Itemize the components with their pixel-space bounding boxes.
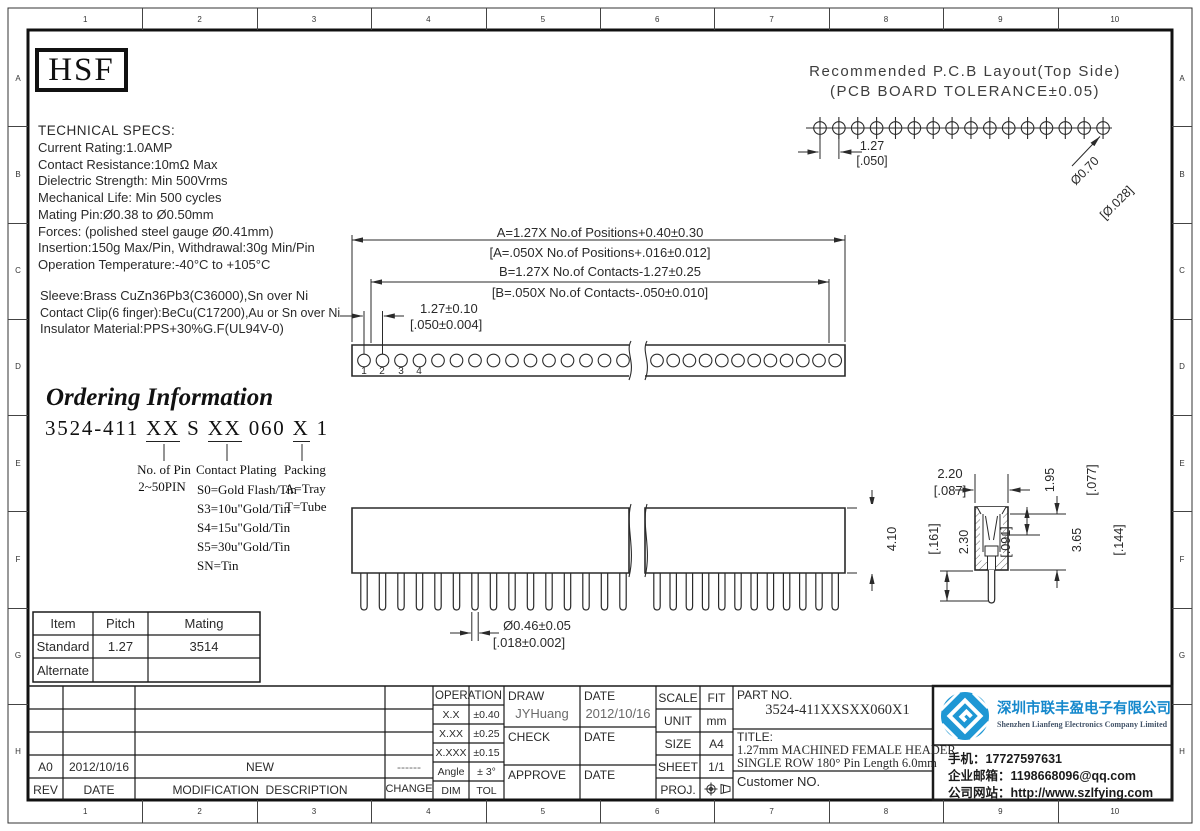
rev-header: REV [28, 783, 63, 797]
draw-date-label: DATE [584, 689, 615, 703]
rev-change-value: ------ [385, 760, 433, 774]
pcb-pitch-dim-mm: 1.27 [850, 139, 894, 153]
drawing-sheet: HSF Recommended P.C.B Layout(Top Side) (… [0, 0, 1200, 831]
ordering-packing-options: A=Tray T=Tube [285, 480, 327, 516]
tol-dim-5: DIM [433, 785, 469, 797]
pin-number-4: 4 [411, 366, 427, 377]
check-date-label: DATE [584, 730, 615, 744]
ruler-number-bottom: 7 [714, 802, 828, 821]
ruler-tick [8, 319, 28, 320]
approve-date-label: DATE [584, 768, 615, 782]
mating-row-alternate: Alternate [33, 663, 93, 678]
dim-b-metric: B=1.27X No.of Contacts-1.27±0.25 [430, 264, 770, 279]
ruler-number-bottom: 6 [600, 802, 714, 821]
spec-line: Sleeve:Brass CuZn36Pb3(C36000),Sn over N… [40, 288, 340, 305]
pin-number-2: 2 [374, 366, 390, 377]
mating-row-standard-pitch: 1.27 [93, 639, 148, 654]
ruler-tick [371, 8, 372, 30]
rev-date-value: 2012/10/16 [63, 760, 135, 774]
company-logo-icon [938, 689, 992, 743]
ordering-leader-lines [164, 444, 302, 461]
scale-label: SCALE [656, 691, 700, 705]
ruler-tick [486, 8, 487, 30]
ruler-number-top: 8 [829, 9, 943, 29]
ruler-tick [1172, 608, 1192, 609]
ruler-tick [8, 608, 28, 609]
check-label: CHECK [508, 730, 550, 744]
tol-dim-2: X.XX [433, 728, 469, 740]
ruler-number-top: 7 [714, 9, 828, 29]
ordering-plating-label: Contact Plating [196, 462, 277, 478]
ruler-letter-left: A [9, 30, 27, 126]
scale-value: FIT [700, 691, 733, 705]
ruler-letter-right: A [1173, 30, 1191, 126]
ordering-plating-options: S0=Gold Flash/Tin S3=10u"Gold/Tin S4=15u… [197, 480, 297, 575]
tolerance-title: OPERATION [433, 690, 504, 702]
proj-label: PROJ. [656, 783, 700, 797]
ruler-number-top: 10 [1058, 9, 1172, 29]
rev-desc-value: NEW [135, 760, 385, 774]
rev-value: A0 [28, 760, 63, 774]
ruler-tick [1172, 223, 1192, 224]
unit-label: UNIT [656, 714, 700, 728]
ruler-tick [829, 800, 830, 823]
spec-line: Mating Pin:Ø0.38 to Ø0.50mm [38, 207, 315, 224]
ruler-number-top: 2 [142, 9, 256, 29]
mating-header-pitch: Pitch [93, 616, 148, 631]
ordering-part-number: 3524-411 XX S XX 060 X 1 [45, 416, 329, 441]
ruler-letter-left: E [9, 415, 27, 511]
approve-label: APPROVE [508, 768, 566, 782]
tol-val-3: ±0.15 [469, 747, 504, 759]
spec-line: Operation Temperature:-40°C to +105°C [38, 257, 315, 274]
tol-val-2: ±0.25 [469, 728, 504, 740]
company-name-en: Shenzhen Lianfeng Electronics Company Li… [997, 720, 1167, 729]
pcb-pitch-dim-in: [.050] [845, 154, 899, 168]
ruler-letter-left: B [9, 126, 27, 222]
ordering-title: Ordering Information [46, 384, 273, 412]
ordering-packing-label: Packing [284, 462, 326, 478]
ruler-tick [8, 126, 28, 127]
ruler-tick [486, 800, 487, 823]
pcb-layout-title: Recommended P.C.B Layout(Top Side) [798, 63, 1132, 80]
pin-number-1: 1 [356, 366, 372, 377]
ruler-tick [1172, 319, 1192, 320]
rev-desc-header: MODIFICATION DESCRIPTION [135, 783, 385, 797]
ruler-number-top: 1 [28, 9, 142, 29]
hsf-logo: HSF [35, 48, 128, 92]
mating-header-item: Item [33, 616, 93, 631]
tol-dim-4: Angle [433, 766, 469, 778]
dim-width-metric: 2.20 [925, 466, 975, 481]
side-view-drawing [352, 490, 886, 641]
ruler-tick [142, 8, 143, 30]
spec-line: Insulator Material:PPS+30%G.F(UL94V-0) [40, 321, 340, 338]
ruler-tick [1172, 415, 1192, 416]
dim-pitch-inch: [.050±0.004] [410, 317, 482, 332]
size-label: SIZE [656, 737, 700, 751]
sheet-value: 1/1 [700, 760, 733, 774]
tol-dim-3: X.XXX [433, 747, 469, 759]
tol-val-1: ±0.40 [469, 709, 504, 721]
title-line2: SINGLE ROW 180° Pin Length 6.0mm [737, 756, 937, 771]
spec-line: Dielectric Strength: Min 500Vrms [38, 173, 315, 190]
dim-body-height: 4.10 [.161] [857, 504, 887, 574]
ruler-number-bottom: 10 [1058, 802, 1172, 821]
ruler-letter-right: C [1173, 223, 1191, 319]
ruler-number-bottom: 8 [829, 802, 943, 821]
ruler-tick [142, 800, 143, 823]
ruler-number-bottom: 2 [142, 802, 256, 821]
ruler-tick [829, 8, 830, 30]
pcb-layout-subtitle: (PCB BOARD TOLERANCE±0.05) [798, 83, 1132, 100]
ruler-number-top: 4 [371, 9, 485, 29]
ordering-pin-value: 2~50PIN [134, 479, 190, 495]
dim-pitch-metric: 1.27±0.10 [420, 301, 478, 316]
ruler-tick [8, 511, 28, 512]
dim-tail: 2.30 [.091] [929, 512, 959, 572]
ruler-tick [600, 800, 601, 823]
dim-a-inch: [A=.050X No.of Positions+.016±0.012] [430, 245, 770, 260]
dim-b-inch: [B=.050X No.of Contacts-.050±0.010] [430, 285, 770, 300]
tech-specs-list: Current Rating:1.0AMP Contact Resistance… [38, 140, 315, 274]
spec-line: Insertion:150g Max/Pin, Withdrawal:30g M… [38, 240, 315, 257]
size-value: A4 [700, 737, 733, 751]
ruler-letter-right: B [1173, 126, 1191, 222]
ruler-tick [1058, 800, 1059, 823]
ruler-tick [8, 415, 28, 416]
unit-value: mm [700, 714, 733, 728]
ruler-tick [1172, 704, 1192, 705]
rev-date-header: DATE [63, 783, 135, 797]
tol-val-5: TOL [469, 785, 504, 797]
title-label: TITLE: [737, 730, 773, 744]
dim-pin-dia-inch: [.018±0.002] [464, 635, 594, 650]
ruler-tick [257, 800, 258, 823]
ruler-letter-left: F [9, 511, 27, 607]
material-specs-list: Sleeve:Brass CuZn36Pb3(C36000),Sn over N… [40, 288, 340, 338]
company-name-cn: 深圳市联丰盈电子有限公司 [997, 697, 1171, 718]
draw-label: DRAW [508, 689, 544, 703]
ruler-tick [714, 8, 715, 30]
ruler-tick [1058, 8, 1059, 30]
tol-dim-1: X.X [433, 709, 469, 721]
ruler-letter-left: C [9, 223, 27, 319]
dim-inner: 3.65 [.144] [1042, 510, 1072, 570]
ruler-number-top: 3 [257, 9, 371, 29]
spec-line: Contact Resistance:10mΩ Max [38, 157, 315, 174]
draw-date-value: 2012/10/16 [580, 706, 656, 721]
ruler-letter-left: H [9, 704, 27, 800]
ruler-tick [1172, 511, 1192, 512]
customer-no-label: Customer NO. [737, 774, 820, 789]
part-no-label: PART NO. [737, 688, 792, 702]
part-no-value: 3524-411XXSXX060X1 [745, 702, 930, 719]
mating-header-mating: Mating [148, 616, 260, 631]
ruler-letter-right: F [1173, 511, 1191, 607]
ruler-number-bottom: 9 [943, 802, 1057, 821]
dim-a-metric: A=1.27X No.of Positions+0.40±0.30 [430, 225, 770, 240]
hsf-logo-text: HSF [48, 52, 115, 89]
company-website: 公司网站：http://www.szlfying.com [948, 782, 1153, 801]
ruler-number-top: 6 [600, 9, 714, 29]
ordering-pin-label: No. of Pin [134, 462, 194, 478]
ruler-tick [600, 8, 601, 30]
spec-line: Contact Clip(6 finger):BeCu(C17200),Au o… [40, 305, 340, 322]
tol-val-4: ± 3° [469, 766, 504, 778]
ruler-tick [943, 800, 944, 823]
ruler-number-bottom: 1 [28, 802, 142, 821]
ruler-letter-right: H [1173, 704, 1191, 800]
ruler-tick [8, 223, 28, 224]
ruler-letter-right: D [1173, 319, 1191, 415]
mating-row-standard-mating: 3514 [148, 639, 260, 654]
ruler-letter-left: D [9, 319, 27, 415]
projection-symbol-icon [705, 783, 731, 796]
spec-line: Forces: (polished steel gauge Ø0.41mm) [38, 224, 315, 241]
ruler-letter-left: G [9, 608, 27, 704]
rev-change-header: CHANGE [385, 783, 433, 795]
ruler-letter-right: E [1173, 415, 1191, 511]
ruler-tick [714, 800, 715, 823]
dim-pin-dia-metric: Ø0.46±0.05 [472, 618, 602, 633]
sheet-label: SHEET [656, 760, 700, 774]
ruler-number-bottom: 4 [371, 802, 485, 821]
pin-number-3: 3 [393, 366, 409, 377]
mating-row-standard: Standard [33, 639, 93, 654]
ruler-tick [1172, 126, 1192, 127]
tech-specs-title: TECHNICAL SPECS: [38, 123, 175, 138]
dim-width-inch: [.087] [919, 483, 981, 498]
dim-depth: 1.95 [.077] [1015, 450, 1045, 510]
ruler-number-bottom: 5 [486, 802, 600, 821]
ruler-number-top: 5 [486, 9, 600, 29]
spec-line: Mechanical Life: Min 500 cycles [38, 190, 315, 207]
ruler-letter-right: G [1173, 608, 1191, 704]
ruler-tick [257, 8, 258, 30]
ruler-number-top: 9 [943, 9, 1057, 29]
ruler-tick [371, 800, 372, 823]
ruler-tick [943, 8, 944, 30]
draw-value: JYHuang [504, 706, 580, 721]
spec-line: Current Rating:1.0AMP [38, 140, 315, 157]
ruler-tick [8, 704, 28, 705]
ruler-number-bottom: 3 [257, 802, 371, 821]
